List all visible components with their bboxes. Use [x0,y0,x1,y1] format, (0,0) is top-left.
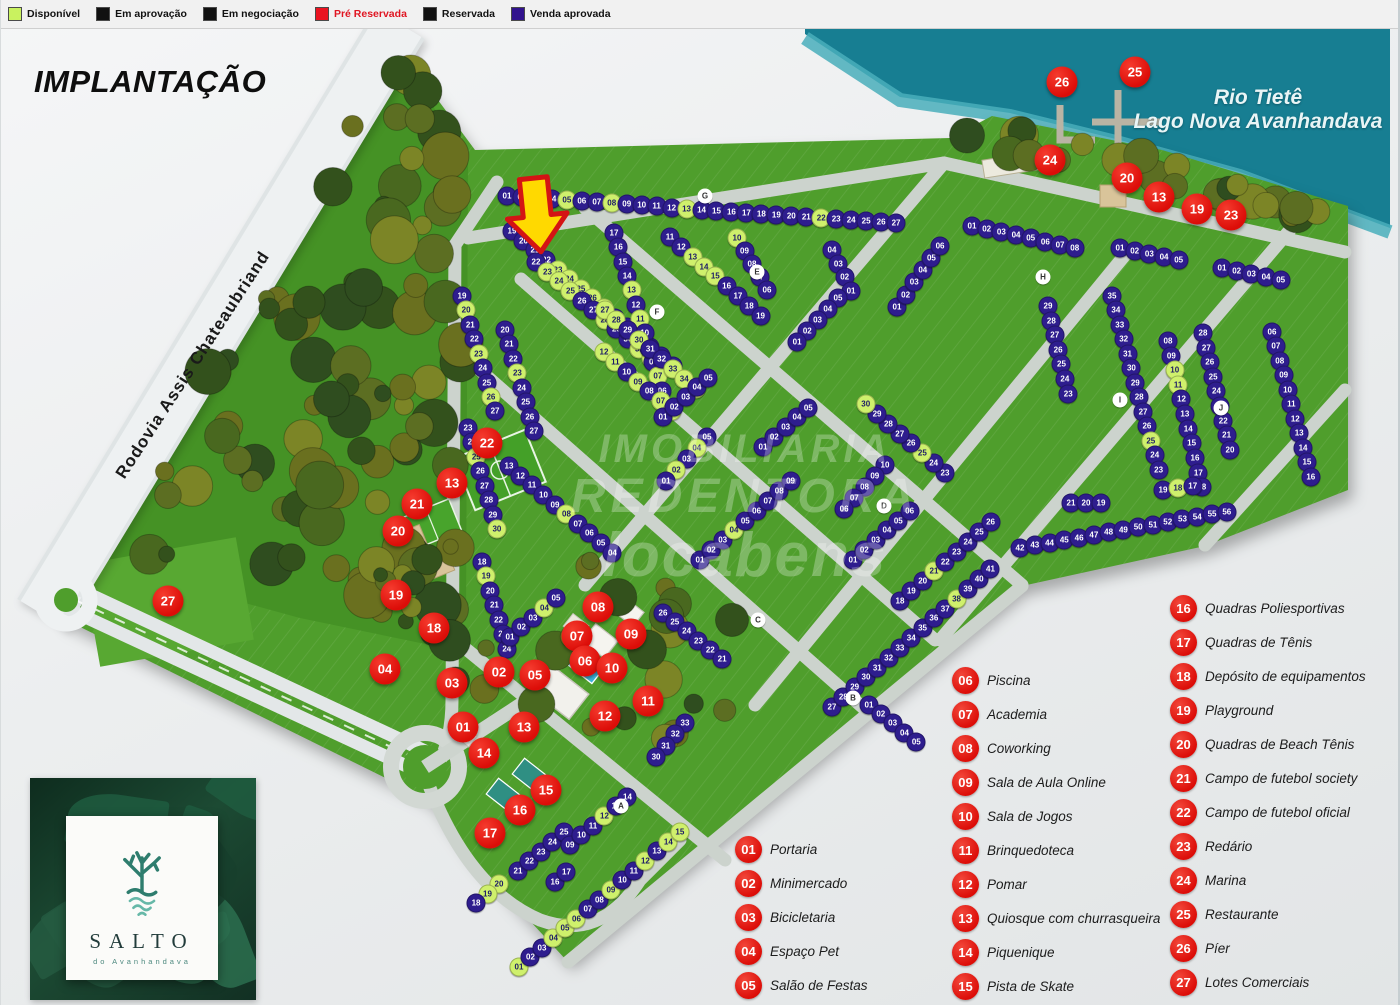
amenity-number-badge: 11 [952,837,979,864]
map-marker-13[interactable]: 13 [1144,182,1175,213]
status-legend-item-3: Pré Reservada [315,7,407,21]
status-label: Venda aprovada [530,8,611,20]
status-label: Disponível [27,8,80,20]
amenity-item-10: 10Sala de Jogos [952,803,1160,829]
amenity-item-04: 04Espaço Pet [735,938,868,964]
amenity-label: Pomar [987,877,1027,892]
logo-card: SALTO do Avanhandava [66,816,218,980]
amenity-label: Brinquedoteca [987,843,1074,858]
amenity-item-02: 02Minimercado [735,870,868,896]
map-marker-05[interactable]: 05 [520,660,551,691]
site-plan-page: 0102030405060708091011121314151617181920… [0,0,1400,1005]
map-marker-13[interactable]: 13 [437,468,468,499]
amenity-number-badge: 06 [952,667,979,694]
amenity-item-17: 17Quadras de Tênis [1170,629,1366,655]
amenity-number-badge: 14 [952,939,979,966]
amenity-label: Depósito de equipamentos [1205,669,1366,684]
amenity-number-badge: 27 [1170,969,1197,996]
status-label: Reservada [442,8,495,20]
amenity-label: Bicicletaria [770,910,835,925]
map-marker-06[interactable]: 06 [570,646,601,677]
amenity-label: Restaurante [1205,907,1279,922]
logo-subtitle: do Avanhandava [93,957,191,966]
amenity-label: Academia [987,707,1047,722]
status-swatch [423,7,437,21]
amenity-number-badge: 18 [1170,663,1197,690]
amenities-column-3: 16Quadras Poliesportivas17Quadras de Tên… [1170,595,1366,995]
amenity-label: Minimercado [770,876,847,891]
water-label: Rio Tietê Lago Nova Avanhandava [1128,86,1388,134]
amenity-label: Sala de Aula Online [987,775,1106,790]
map-marker-16[interactable]: 16 [505,795,536,826]
map-marker-11[interactable]: 11 [633,686,664,717]
amenity-number-badge: 05 [735,972,762,999]
amenity-item-12: 12Pomar [952,871,1160,897]
amenity-item-06: 06Piscina [952,667,1160,693]
amenity-label: Espaço Pet [770,944,839,959]
map-marker-25[interactable]: 25 [1120,57,1151,88]
status-legend-item-5: Venda aprovada [511,7,611,21]
amenity-item-03: 03Bicicletaria [735,904,868,930]
amenity-label: Pista de Skate [987,979,1074,994]
amenity-item-21: 21Campo de futebol society [1170,765,1366,791]
amenity-number-badge: 16 [1170,595,1197,622]
amenity-number-badge: 01 [735,836,762,863]
amenity-item-13: 13Quiosque com churrasqueira [952,905,1160,931]
amenity-number-badge: 10 [952,803,979,830]
amenity-number-badge: 09 [952,769,979,796]
amenity-item-11: 11Brinquedoteca [952,837,1160,863]
amenity-item-15: 15Pista de Skate [952,973,1160,999]
water-label-line1: Rio Tietê [1128,86,1388,110]
amenity-label: Campo de futebol oficial [1205,805,1350,820]
amenity-item-01: 01Portaria [735,836,868,862]
amenity-label: Marina [1205,873,1246,888]
amenity-label: Sala de Jogos [987,809,1073,824]
amenity-item-23: 23Redário [1170,833,1366,859]
amenity-label: Quadras de Tênis [1205,635,1312,650]
status-label: Em aprovação [115,8,187,20]
amenity-number-badge: 23 [1170,833,1197,860]
amenities-column-2: 06Piscina07Academia08Coworking09Sala de … [952,667,1160,999]
amenity-number-badge: 04 [735,938,762,965]
amenity-item-25: 25Restaurante [1170,901,1366,927]
map-marker-10[interactable]: 10 [597,653,628,684]
amenity-number-badge: 21 [1170,765,1197,792]
page-title: IMPLANTAÇÃO [34,64,266,100]
map-marker-08[interactable]: 08 [583,592,614,623]
status-legend: DisponívelEm aprovaçãoEm negociaçãoPré R… [0,0,1400,29]
map-marker-19[interactable]: 19 [381,580,412,611]
map-marker-22[interactable]: 22 [472,428,503,459]
status-legend-item-4: Reservada [423,7,495,21]
amenity-number-badge: 26 [1170,935,1197,962]
amenity-item-16: 16Quadras Poliesportivas [1170,595,1366,621]
amenity-label: Coworking [987,741,1051,756]
map-marker-17[interactable]: 17 [475,818,506,849]
status-swatch [315,7,329,21]
amenity-label: Portaria [770,842,817,857]
amenity-label: Campo de futebol society [1205,771,1357,786]
amenity-item-14: 14Piquenique [952,939,1160,965]
status-label: Em negociação [222,8,299,20]
map-marker-26[interactable]: 26 [1047,67,1078,98]
amenity-label: Lotes Comerciais [1205,975,1309,990]
logo-name: SALTO [89,929,194,954]
status-legend-item-2: Em negociação [203,7,299,21]
map-marker-27[interactable]: 27 [153,586,184,617]
status-label: Pré Reservada [334,8,407,20]
amenity-number-badge: 07 [952,701,979,728]
amenity-number-badge: 19 [1170,697,1197,724]
amenity-label: Playground [1205,703,1273,718]
amenity-label: Quadras Poliesportivas [1205,601,1345,616]
amenity-number-badge: 17 [1170,629,1197,656]
status-legend-item-0: Disponível [8,7,80,21]
amenity-label: Píer [1205,941,1230,956]
amenity-item-22: 22Campo de futebol oficial [1170,799,1366,825]
amenity-number-badge: 22 [1170,799,1197,826]
amenity-label: Salão de Festas [770,978,868,993]
amenity-number-badge: 13 [952,905,979,932]
amenity-number-badge: 25 [1170,901,1197,928]
development-logo: SALTO do Avanhandava [30,778,256,1000]
amenity-label: Quadras de Beach Tênis [1205,737,1354,752]
map-marker-19[interactable]: 19 [1182,194,1213,225]
amenity-item-07: 07Academia [952,701,1160,727]
status-swatch [8,7,22,21]
amenity-item-05: 05Salão de Festas [735,972,868,998]
map-marker-12[interactable]: 12 [590,701,621,732]
map-marker-03[interactable]: 03 [437,668,468,699]
map-marker-04[interactable]: 04 [370,654,401,685]
amenity-item-09: 09Sala de Aula Online [952,769,1160,795]
amenity-number-badge: 20 [1170,731,1197,758]
map-marker-18[interactable]: 18 [419,613,450,644]
map-marker-02[interactable]: 02 [484,657,515,688]
status-legend-item-1: Em aprovação [96,7,187,21]
map-marker-01[interactable]: 01 [448,712,479,743]
amenity-item-20: 20Quadras de Beach Tênis [1170,731,1366,757]
amenity-number-badge: 03 [735,904,762,931]
map-marker-24[interactable]: 24 [1035,145,1066,176]
amenity-item-08: 08Coworking [952,735,1160,761]
amenity-label: Piscina [987,673,1031,688]
map-marker-15[interactable]: 15 [531,775,562,806]
amenities-column-1: 01Portaria02Minimercado03Bicicletaria04E… [735,836,868,998]
map-marker-13[interactable]: 13 [509,712,540,743]
status-swatch [203,7,217,21]
amenity-item-26: 26Píer [1170,935,1366,961]
status-swatch [511,7,525,21]
map-marker-20[interactable]: 20 [383,516,414,547]
amenity-label: Piquenique [987,945,1055,960]
amenity-item-19: 19Playground [1170,697,1366,723]
map-marker-23[interactable]: 23 [1216,200,1247,231]
tree-logo-icon [99,839,185,925]
amenity-label: Redário [1205,839,1252,854]
map-marker-09[interactable]: 09 [616,619,647,650]
amenity-number-badge: 02 [735,870,762,897]
amenity-item-27: 27Lotes Comerciais [1170,969,1366,995]
amenity-number-badge: 24 [1170,867,1197,894]
amenity-label: Quiosque com churrasqueira [987,911,1160,926]
map-marker-14[interactable]: 14 [469,738,500,769]
water-label-line2: Lago Nova Avanhandava [1128,110,1388,134]
map-marker-20[interactable]: 20 [1112,163,1143,194]
amenity-number-badge: 15 [952,973,979,1000]
amenity-item-24: 24Marina [1170,867,1366,893]
amenity-number-badge: 08 [952,735,979,762]
status-swatch [96,7,110,21]
amenity-number-badge: 12 [952,871,979,898]
map-marker-21[interactable]: 21 [402,489,433,520]
amenity-item-18: 18Depósito de equipamentos [1170,663,1366,689]
